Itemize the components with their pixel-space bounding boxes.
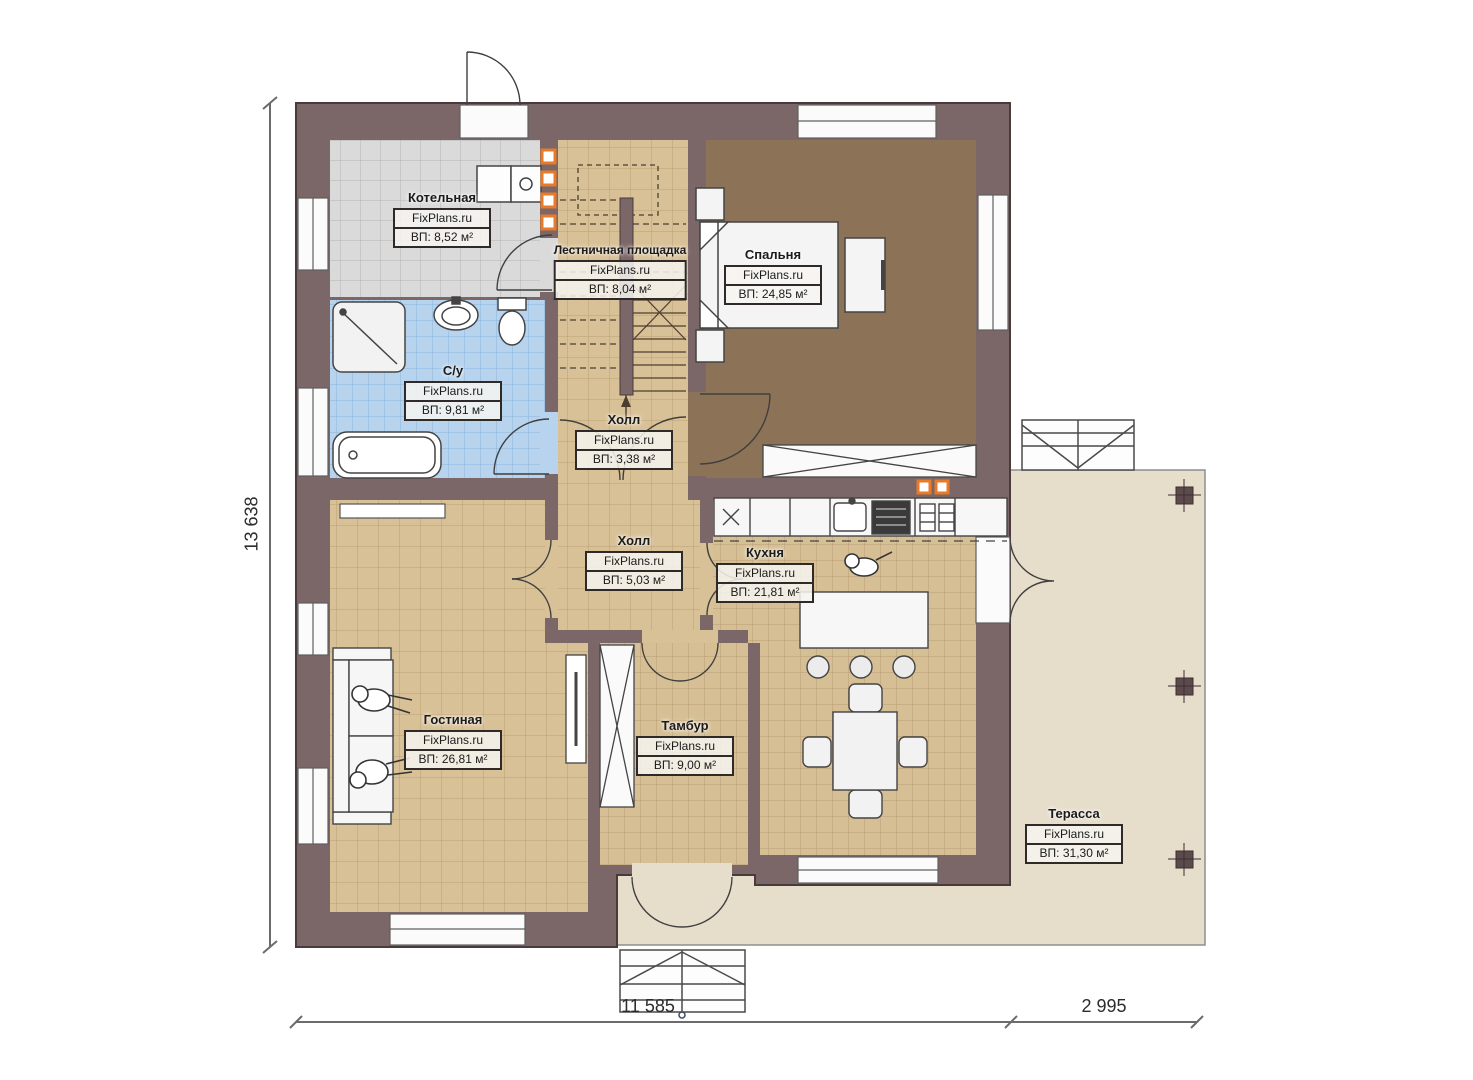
chair <box>803 737 831 767</box>
room-area: ВП: 21,81 м² <box>716 584 814 603</box>
watermark: FixPlans.ru <box>554 260 687 281</box>
watermark: FixPlans.ru <box>404 730 502 751</box>
room-area: ВП: 5,03 м² <box>585 572 683 591</box>
dresser <box>845 238 885 312</box>
bar-stools <box>807 656 915 678</box>
nightstand <box>696 330 724 362</box>
room-name: Терасса <box>1025 806 1123 821</box>
room-name: Котельная <box>393 190 491 205</box>
watermark: FixPlans.ru <box>724 265 822 286</box>
kitchen-counter <box>714 498 1007 541</box>
window-boiler-left <box>298 198 328 270</box>
room-area: ВП: 8,04 м² <box>554 281 687 300</box>
dimension-left: 13 638 <box>242 496 263 551</box>
room-label-bedroom: Спальня FixPlans.ru ВП: 24,85 м² <box>724 247 822 305</box>
window-living-bottom <box>390 914 525 945</box>
bathtub <box>333 432 441 478</box>
watermark: FixPlans.ru <box>716 563 814 584</box>
sliding-door <box>566 655 586 763</box>
nightstand <box>696 188 724 220</box>
room-area: ВП: 8,52 м² <box>393 229 491 248</box>
room-area: ВП: 26,81 м² <box>404 751 502 770</box>
dimension-bottom: 11 585 <box>621 996 675 1017</box>
watermark: FixPlans.ru <box>636 736 734 757</box>
floor-plan-page: Котельная FixPlans.ru ВП: 8,52 м² Лестни… <box>0 0 1473 1080</box>
room-area: ВП: 9,81 м² <box>404 402 502 421</box>
watermark: FixPlans.ru <box>404 381 502 402</box>
room-label-vestibule: Тамбур FixPlans.ru ВП: 9,00 м² <box>636 718 734 776</box>
window-living-left-1 <box>298 603 328 655</box>
window-living-left-2 <box>298 768 328 844</box>
watermark: FixPlans.ru <box>575 430 673 451</box>
room-label-terrace: Терасса FixPlans.ru ВП: 31,30 м² <box>1025 806 1123 864</box>
watermark: FixPlans.ru <box>585 551 683 572</box>
bedroom-wardrobe <box>763 445 976 477</box>
room-label-stair-landing: Лестничная площадка FixPlans.ru ВП: 8,04… <box>554 243 687 300</box>
room-area: ВП: 3,38 м² <box>575 451 673 470</box>
sofa <box>333 648 393 824</box>
room-name: С/у <box>404 363 502 378</box>
room-name: Гостиная <box>404 712 502 727</box>
back-door-frame <box>460 105 528 138</box>
chair <box>849 684 882 712</box>
toilet <box>498 298 526 345</box>
window-bedroom-top <box>798 105 936 138</box>
chair <box>899 737 927 767</box>
room-name: Холл <box>575 412 673 427</box>
room-label-bathroom: С/у FixPlans.ru ВП: 9,81 м² <box>404 363 502 421</box>
room-label-hall-upper: Холл FixPlans.ru ВП: 3,38 м² <box>575 412 673 470</box>
vestibule-closet <box>600 645 634 807</box>
room-label-living-room: Гостиная FixPlans.ru ВП: 26,81 м² <box>404 712 502 770</box>
window-kitchen-bottom <box>798 857 938 883</box>
room-name: Тамбур <box>636 718 734 733</box>
room-area: ВП: 24,85 м² <box>724 286 822 305</box>
floor-plan-drawing <box>0 0 1473 1080</box>
room-name: Лестничная площадка <box>554 243 687 257</box>
radiator <box>340 504 445 518</box>
watermark: FixPlans.ru <box>393 208 491 229</box>
window-bathroom-left <box>298 388 328 476</box>
room-name: Кухня <box>716 545 814 560</box>
terrace-door-frame <box>976 537 1010 623</box>
room-name: Спальня <box>724 247 822 262</box>
room-label-boiler: Котельная FixPlans.ru ВП: 8,52 м² <box>393 190 491 248</box>
watermark: FixPlans.ru <box>1025 824 1123 845</box>
room-label-kitchen: Кухня FixPlans.ru ВП: 21,81 м² <box>716 545 814 603</box>
dimension-bottom-right: 2 995 <box>1081 996 1126 1017</box>
room-label-hall-lower: Холл FixPlans.ru ВП: 5,03 м² <box>585 533 683 591</box>
kitchen-island <box>800 592 928 648</box>
back-entrance-door <box>467 52 520 105</box>
kitchen-sink <box>834 503 866 531</box>
shower-cabin <box>333 302 405 372</box>
dining-table <box>833 712 897 790</box>
chair <box>849 790 882 818</box>
terrace-steps <box>1022 420 1134 470</box>
room-area: ВП: 9,00 м² <box>636 757 734 776</box>
room-name: Холл <box>585 533 683 548</box>
room-area: ВП: 31,30 м² <box>1025 845 1123 864</box>
window-bedroom-right <box>978 195 1008 330</box>
